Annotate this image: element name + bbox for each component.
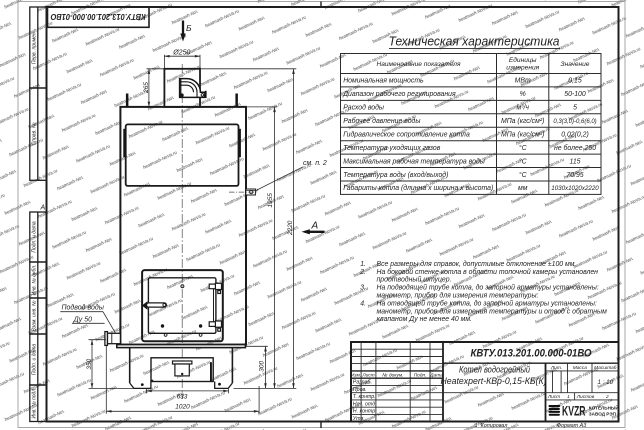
- svg-text:ЗАВОД РЭП: ЗАВОД РЭП: [589, 412, 616, 417]
- svg-text:манометр, прибор для измерения: манометр, прибор для измерения температу…: [377, 307, 608, 315]
- svg-text:70/95: 70/95: [566, 172, 583, 179]
- svg-text:м³/ч: м³/ч: [516, 105, 529, 112]
- svg-text:3.: 3.: [360, 285, 366, 292]
- svg-text:°С: °С: [519, 144, 528, 152]
- svg-text:Подп. и дата: Подп. и дата: [32, 344, 38, 376]
- svg-text:265: 265: [143, 82, 150, 94]
- svg-text:см. п. 2: см. п. 2: [303, 160, 327, 167]
- svg-text:Габариты котла (длинна х ширин: Габариты котла (длинна х ширина х высота…: [343, 184, 493, 192]
- svg-text:манометр, прибор для измерения: манометр, прибор для измерения температу…: [377, 292, 539, 300]
- svg-text:Температура уходящих газов: Температура уходящих газов: [343, 144, 441, 152]
- svg-text:Ду 50: Ду 50: [73, 316, 92, 323]
- svg-text:Техническая характеристика: Техническая характеристика: [389, 35, 560, 49]
- svg-text:МПа (кгс/см²): МПа (кгс/см²): [501, 118, 544, 125]
- svg-text:Б: Б: [186, 23, 192, 33]
- svg-text:1020: 1020: [175, 404, 190, 411]
- svg-text:Рабочее давление воды: Рабочее давление воды: [343, 117, 420, 125]
- svg-text:50-100: 50-100: [564, 91, 586, 98]
- svg-text:Ø250: Ø250: [172, 49, 190, 56]
- svg-text:Изм.: Изм.: [351, 373, 361, 379]
- svg-text:клапаном Ду не менее 40 мм.: клапаном Ду не менее 40 мм.: [377, 316, 473, 323]
- svg-text:Утв.: Утв.: [353, 416, 365, 422]
- svg-text:Температура воды (вход/выход): Температура воды (вход/выход): [343, 171, 448, 179]
- svg-text:Лист: Лист: [361, 373, 374, 379]
- svg-text:№ докум.: № докум.: [382, 373, 403, 379]
- svg-text:проотводный штуцер.: проотводный штуцер.: [377, 276, 452, 284]
- svg-text:Н. контр.: Н. контр.: [353, 409, 377, 415]
- svg-text:1: 1: [475, 423, 478, 429]
- svg-text:0,3(3,0)-0,6(6,0): 0,3(3,0)-0,6(6,0): [553, 119, 596, 125]
- svg-text:Значение: Значение: [561, 61, 590, 68]
- svg-text:Перв. примен.: Перв. примен.: [32, 31, 38, 64]
- svg-text:Т. контр.: Т. контр.: [353, 394, 376, 400]
- svg-text:633: 633: [177, 394, 188, 401]
- svg-text:1: 1: [567, 394, 570, 400]
- svg-text:Подвод воды: Подвод воды: [61, 304, 104, 312]
- svg-text:1955: 1955: [267, 193, 274, 208]
- svg-text:Инв. № подл.: Инв. № подл.: [32, 387, 38, 418]
- svg-text:КВТУ.013.201.00.000-01ВО: КВТУ.013.201.00.000-01ВО: [50, 12, 145, 22]
- svg-text:0,02(0,2): 0,02(0,2): [561, 131, 589, 138]
- svg-text:Лист: Лист: [547, 394, 560, 400]
- svg-text:КВТУ.013.201.00.000-01ВО: КВТУ.013.201.00.000-01ВО: [471, 348, 593, 360]
- svg-text:Листов: Листов: [576, 394, 595, 400]
- svg-text:2: 2: [605, 394, 609, 400]
- svg-text:300: 300: [259, 360, 266, 371]
- svg-text:1 : 10: 1 : 10: [598, 379, 614, 386]
- svg-text:Формат А3: Формат А3: [557, 423, 587, 429]
- svg-text:4.: 4.: [360, 300, 366, 307]
- svg-text:Подп.: Подп.: [414, 373, 427, 379]
- svg-text:Максимальная рабочая температу: Максимальная рабочая температура воды: [343, 157, 485, 165]
- svg-text:Единицы: Единицы: [509, 56, 537, 64]
- svg-text:Пров.: Пров.: [353, 387, 367, 393]
- svg-text:А: А: [311, 221, 319, 232]
- svg-text:Инв. № дубл.: Инв. № дубл.: [32, 265, 38, 296]
- svg-text:мм: мм: [518, 185, 528, 192]
- svg-text:Копировал: Копировал: [481, 423, 508, 429]
- svg-text:°С: °С: [519, 171, 528, 179]
- svg-text:На боковой стенке котла в обла: На боковой стенке котла в области топочн…: [377, 268, 599, 276]
- svg-text:МПа (кгс/см²): МПа (кгс/см²): [501, 131, 544, 138]
- svg-text:Гидравлическое сопротивление к: Гидравлическое сопротивление котла: [343, 130, 470, 138]
- svg-text:МВт: МВт: [515, 78, 531, 85]
- svg-text:5: 5: [573, 105, 577, 112]
- svg-text:Взам. инв. №: Взам. инв. №: [32, 300, 38, 332]
- svg-text:Диапазон рабочего регулировани: Диапазон рабочего регулирования: [342, 90, 456, 98]
- svg-text:°С: °С: [519, 157, 528, 165]
- svg-text:На подводящей трубе котла, до: На подводящей трубе котла, до запорной а…: [377, 284, 599, 292]
- svg-text:Масштаб: Масштаб: [594, 365, 617, 371]
- svg-text:Наименование показателя: Наименование показателя: [376, 61, 461, 68]
- svg-text:Котел водогрейный: Котел водогрейный: [459, 365, 530, 375]
- svg-text:115: 115: [570, 158, 581, 165]
- svg-text:Масса: Масса: [573, 365, 588, 371]
- svg-text:Все размеры для справок, допус: Все размеры для справок, допустимые откл…: [377, 260, 577, 268]
- svg-text:На отводящей трубе котла, до з: На отводящей трубе котла, до запорной ар…: [377, 299, 597, 307]
- svg-text:0,15: 0,15: [568, 78, 582, 85]
- svg-text:Heatexpert-КВр-0,15-КБ(К): Heatexpert-КВр-0,15-КБ(К): [441, 376, 547, 386]
- svg-text:Расход воды: Расход воды: [343, 104, 384, 112]
- svg-text:измерения: измерения: [506, 64, 539, 71]
- svg-text:1030х1020х2220: 1030х1020х2220: [551, 185, 599, 192]
- svg-text:350: 350: [86, 358, 93, 369]
- svg-text:KVZR: KVZR: [562, 404, 586, 419]
- svg-text:1.: 1.: [360, 261, 366, 268]
- svg-text:%: %: [520, 91, 526, 98]
- svg-text:Номинальная мощность: Номинальная мощность: [343, 78, 424, 85]
- svg-text:Нач. отд.: Нач. отд.: [353, 401, 377, 407]
- svg-text:А: А: [40, 205, 46, 212]
- svg-text:2.: 2.: [359, 269, 366, 276]
- svg-text:2220: 2220: [287, 220, 294, 236]
- svg-text:Подп. и дата: Подп. и дата: [32, 221, 38, 253]
- svg-text:Разраб.: Разраб.: [353, 380, 372, 386]
- svg-text:Лит.: Лит.: [550, 365, 562, 371]
- svg-text:КОТЕЛЬНЫЙ: КОТЕЛЬНЫЙ: [589, 403, 619, 410]
- svg-text:Справ. №: Справ. №: [32, 122, 38, 145]
- svg-text:не более 250: не более 250: [554, 144, 596, 152]
